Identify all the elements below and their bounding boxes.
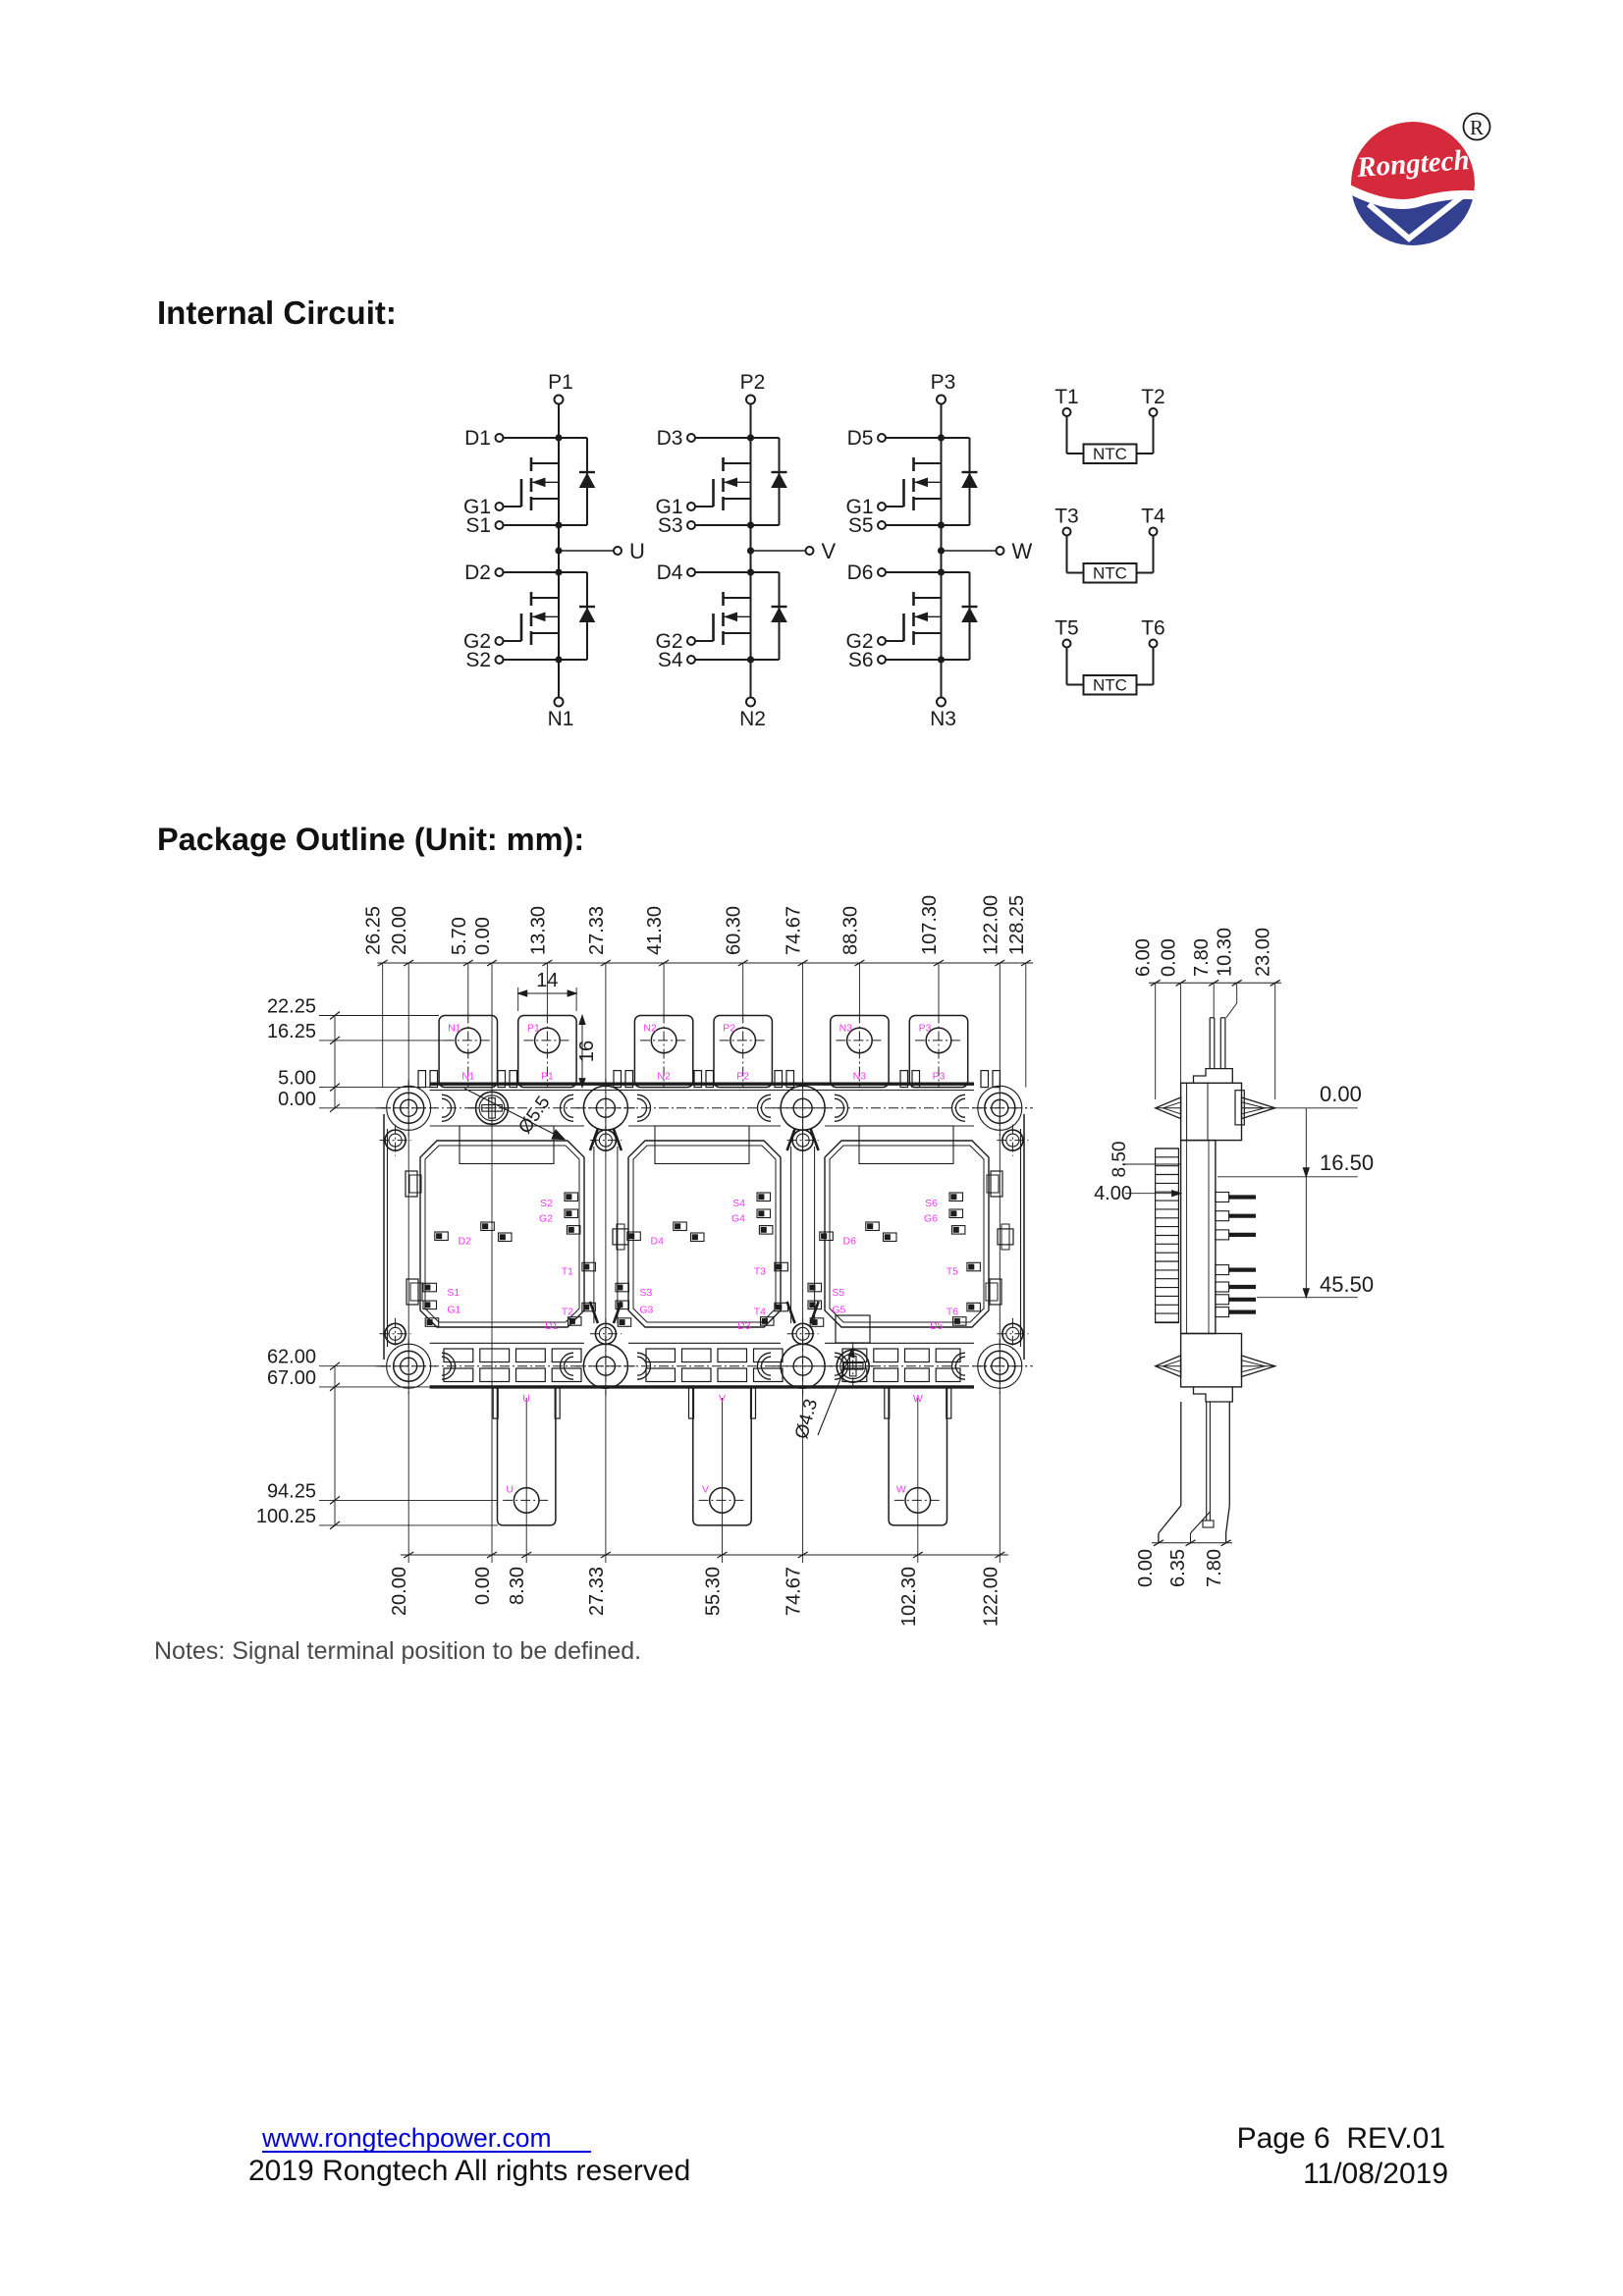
svg-text:0.00: 0.00 [278, 1089, 316, 1110]
svg-text:7.80: 7.80 [1204, 1549, 1225, 1587]
svg-text:0.00: 0.00 [1320, 1082, 1362, 1106]
svg-text:P2: P2 [736, 1071, 749, 1083]
svg-text:S1: S1 [465, 514, 491, 537]
svg-text:G2: G2 [539, 1212, 553, 1224]
svg-text:NTC: NTC [1093, 445, 1127, 463]
svg-text:128.25: 128.25 [1006, 895, 1028, 955]
svg-text:D6: D6 [847, 561, 874, 584]
svg-text:D1: D1 [545, 1320, 559, 1332]
svg-text:S3: S3 [639, 1287, 652, 1299]
svg-text:67.00: 67.00 [267, 1367, 316, 1389]
svg-text:G6: G6 [924, 1212, 938, 1224]
svg-text:D5: D5 [847, 427, 874, 450]
svg-text:P3: P3 [919, 1023, 932, 1035]
svg-text:V: V [822, 539, 837, 563]
svg-text:62.00: 62.00 [267, 1347, 316, 1368]
svg-text:N3: N3 [839, 1023, 853, 1035]
svg-text:100.25: 100.25 [256, 1506, 316, 1527]
svg-text:S2: S2 [540, 1198, 553, 1209]
svg-text:8.50: 8.50 [1109, 1142, 1130, 1178]
svg-text:107.30: 107.30 [919, 895, 941, 955]
svg-text:S6: S6 [848, 649, 874, 671]
svg-text:W: W [896, 1483, 906, 1495]
svg-text:Page 6 REV.01: Page 6 REV.01 [1237, 2122, 1445, 2155]
svg-text:S4: S4 [658, 649, 683, 671]
svg-text:N2: N2 [657, 1071, 671, 1083]
svg-text:D6: D6 [843, 1236, 857, 1248]
svg-text:D4: D4 [651, 1236, 665, 1248]
svg-text:U: U [629, 539, 645, 563]
svg-text:10.30: 10.30 [1215, 928, 1236, 977]
svg-text:60.30: 60.30 [724, 906, 745, 955]
svg-text:22.25: 22.25 [267, 996, 316, 1018]
svg-text:P1: P1 [541, 1071, 554, 1083]
svg-text:W: W [1012, 539, 1033, 563]
svg-text:S3: S3 [658, 514, 683, 537]
svg-text:G5: G5 [832, 1305, 845, 1316]
svg-text:14: 14 [536, 970, 558, 991]
svg-text:S5: S5 [832, 1287, 844, 1299]
svg-text:D1: D1 [464, 427, 491, 450]
svg-text:16.25: 16.25 [267, 1021, 316, 1042]
svg-text:Internal Circuit:: Internal Circuit: [157, 294, 397, 331]
svg-text:D5: D5 [930, 1320, 944, 1332]
svg-text:16: 16 [576, 1041, 598, 1062]
svg-text:G1: G1 [447, 1305, 460, 1316]
svg-text:S2: S2 [465, 649, 491, 671]
svg-text:D4: D4 [657, 561, 683, 584]
svg-text:T3: T3 [754, 1266, 766, 1278]
svg-text:T4: T4 [1141, 506, 1165, 528]
svg-text:6.00: 6.00 [1133, 938, 1155, 977]
svg-text:P3: P3 [931, 371, 956, 394]
svg-text:P2: P2 [740, 371, 766, 394]
svg-text:U: U [522, 1393, 530, 1405]
svg-text:2019 Rongtech All rights reser: 2019 Rongtech All rights reserved [248, 2155, 690, 2187]
svg-text:NTC: NTC [1093, 676, 1127, 695]
svg-text:5.70: 5.70 [449, 917, 470, 955]
svg-text:26.25: 26.25 [363, 906, 385, 955]
svg-text:T4: T4 [754, 1307, 766, 1318]
svg-text:20.00: 20.00 [389, 906, 410, 955]
svg-text:122.00: 122.00 [980, 895, 1001, 955]
svg-text:N1: N1 [548, 708, 574, 730]
svg-text:N3: N3 [853, 1071, 867, 1083]
svg-text:P3: P3 [933, 1071, 946, 1083]
svg-text:NTC: NTC [1093, 564, 1127, 583]
svg-text:D2: D2 [464, 561, 491, 584]
svg-text:27.33: 27.33 [586, 906, 608, 955]
svg-text:S6: S6 [925, 1198, 938, 1209]
svg-text:94.25: 94.25 [267, 1480, 316, 1502]
svg-text:T5: T5 [1055, 617, 1079, 640]
svg-text:74.67: 74.67 [784, 1567, 805, 1616]
svg-text:102.30: 102.30 [898, 1567, 920, 1627]
svg-text:74.67: 74.67 [784, 906, 805, 955]
svg-text:13.30: 13.30 [527, 906, 549, 955]
svg-text:V: V [702, 1483, 709, 1495]
svg-text:0.00: 0.00 [472, 917, 494, 955]
svg-text:122.00: 122.00 [980, 1567, 1001, 1627]
svg-text:Notes: Signal terminal positio: Notes: Signal terminal position to be de… [154, 1637, 641, 1665]
svg-text:Package Outline (Unit: mm):: Package Outline (Unit: mm): [157, 822, 584, 857]
svg-text:T1: T1 [562, 1266, 573, 1278]
svg-text:T2: T2 [562, 1307, 573, 1318]
svg-text:T1: T1 [1055, 386, 1079, 408]
svg-text:20.00: 20.00 [389, 1567, 410, 1616]
svg-text:8.30: 8.30 [507, 1567, 528, 1605]
svg-text:0.00: 0.00 [1159, 938, 1180, 977]
svg-text:U: U [506, 1483, 514, 1495]
svg-text:45.50: 45.50 [1320, 1272, 1374, 1297]
svg-text:23.00: 23.00 [1253, 928, 1274, 977]
svg-text:T6: T6 [1141, 617, 1165, 640]
svg-text:N2: N2 [739, 708, 766, 730]
svg-text:N3: N3 [930, 708, 956, 730]
svg-text:7.80: 7.80 [1191, 938, 1213, 977]
svg-text:D3: D3 [657, 427, 683, 450]
svg-text:0.00: 0.00 [472, 1567, 494, 1605]
svg-text:41.30: 41.30 [644, 906, 666, 955]
svg-text:V: V [719, 1393, 726, 1405]
svg-text:N2: N2 [643, 1023, 657, 1035]
svg-text:S1: S1 [447, 1287, 460, 1299]
svg-text:P1: P1 [527, 1023, 540, 1035]
svg-text:W: W [913, 1393, 923, 1405]
svg-text:27.33: 27.33 [586, 1567, 608, 1616]
svg-text:55.30: 55.30 [703, 1567, 725, 1616]
svg-text:P2: P2 [723, 1023, 735, 1035]
svg-text:T3: T3 [1055, 506, 1079, 528]
svg-text:T5: T5 [947, 1266, 958, 1278]
svg-text:16.50: 16.50 [1320, 1150, 1374, 1175]
svg-text:N1: N1 [448, 1023, 461, 1035]
svg-text:5.00: 5.00 [278, 1068, 316, 1090]
svg-text:D3: D3 [737, 1320, 751, 1332]
svg-text:www.rongtechpower.com: www.rongtechpower.com [261, 2123, 552, 2153]
svg-text:G3: G3 [639, 1305, 653, 1316]
svg-text:T2: T2 [1141, 386, 1165, 408]
svg-text:11/08/2019: 11/08/2019 [1303, 2158, 1448, 2190]
svg-text:N1: N1 [461, 1071, 475, 1083]
svg-text:G4: G4 [731, 1212, 745, 1224]
svg-text:D2: D2 [459, 1236, 472, 1248]
svg-text:S4: S4 [732, 1198, 745, 1209]
svg-text:6.35: 6.35 [1167, 1549, 1189, 1587]
svg-text:S5: S5 [848, 514, 874, 537]
svg-text:4.00: 4.00 [1094, 1183, 1132, 1204]
svg-text:T6: T6 [947, 1307, 958, 1318]
svg-text:R: R [1470, 116, 1484, 139]
svg-text:P1: P1 [548, 371, 573, 394]
svg-text:0.00: 0.00 [1135, 1549, 1157, 1587]
svg-text:88.30: 88.30 [839, 906, 861, 955]
